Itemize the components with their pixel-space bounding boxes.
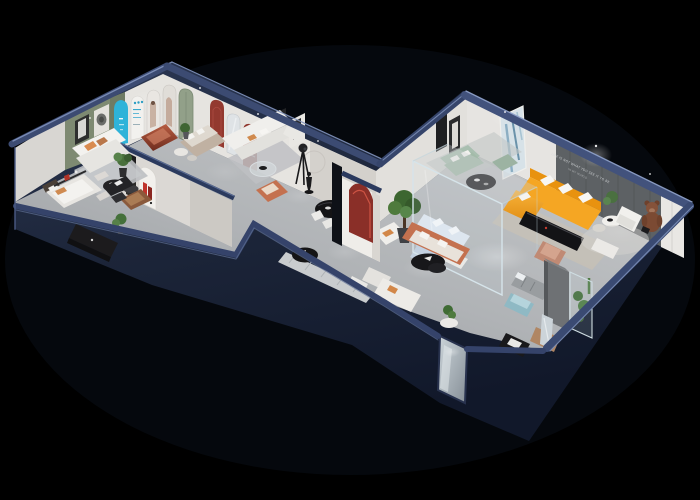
white-round-table [440, 318, 458, 328]
figure-statue-head [307, 172, 311, 176]
potted-tree [400, 206, 412, 218]
poster-dot [150, 202, 152, 204]
poster-text-line [133, 124, 140, 125]
plant-stand [183, 132, 189, 139]
floorplan-render: LIFE IS NOT WHAT YOU SEE IT TO BE IN MY … [0, 0, 700, 500]
poster-glyph [141, 101, 143, 103]
sofa-side-plant [603, 197, 611, 205]
console-decor [545, 227, 547, 229]
console-decor [91, 239, 93, 241]
mirror-door-panel [438, 336, 467, 403]
cyan-arch-text [119, 124, 124, 125]
art-frame-mat [452, 121, 458, 149]
shelf-vase [75, 171, 78, 174]
black-organic-coffee-table [428, 263, 446, 273]
poster-text-line [133, 117, 141, 118]
round-side-table [174, 148, 188, 156]
potted-plant [114, 153, 123, 162]
poster-text-line [133, 109, 141, 110]
corner-plant [180, 123, 190, 133]
photo-figure [166, 97, 172, 127]
potted-tree [388, 201, 402, 215]
wall-gap-dark [332, 162, 342, 246]
spotlight-head [299, 144, 308, 153]
poster-text-line [133, 113, 139, 114]
disc-art-center [99, 117, 104, 123]
cyan-arch-text [120, 129, 123, 130]
cyan-arch-text [119, 118, 123, 119]
door-glow [444, 347, 460, 357]
photo-figure-head [151, 101, 155, 105]
plant-pot [119, 168, 127, 177]
table-bowl [607, 218, 613, 221]
table-plate [325, 207, 331, 210]
photo-figure [150, 101, 156, 128]
poster-glyph [134, 102, 136, 104]
poster-glyph [137, 101, 139, 103]
pillar-shade [372, 192, 380, 262]
statue-base [305, 190, 314, 194]
round-side-table [187, 155, 197, 161]
table-tray [259, 166, 267, 170]
table-plant [448, 311, 456, 319]
potted-plant [124, 154, 132, 162]
gray-partition-side [544, 260, 548, 321]
screenshot-root: LIFE IS NOT WHAT YOU SEE IT TO BE IN MY … [0, 0, 700, 500]
spotlight-lens [304, 148, 307, 151]
